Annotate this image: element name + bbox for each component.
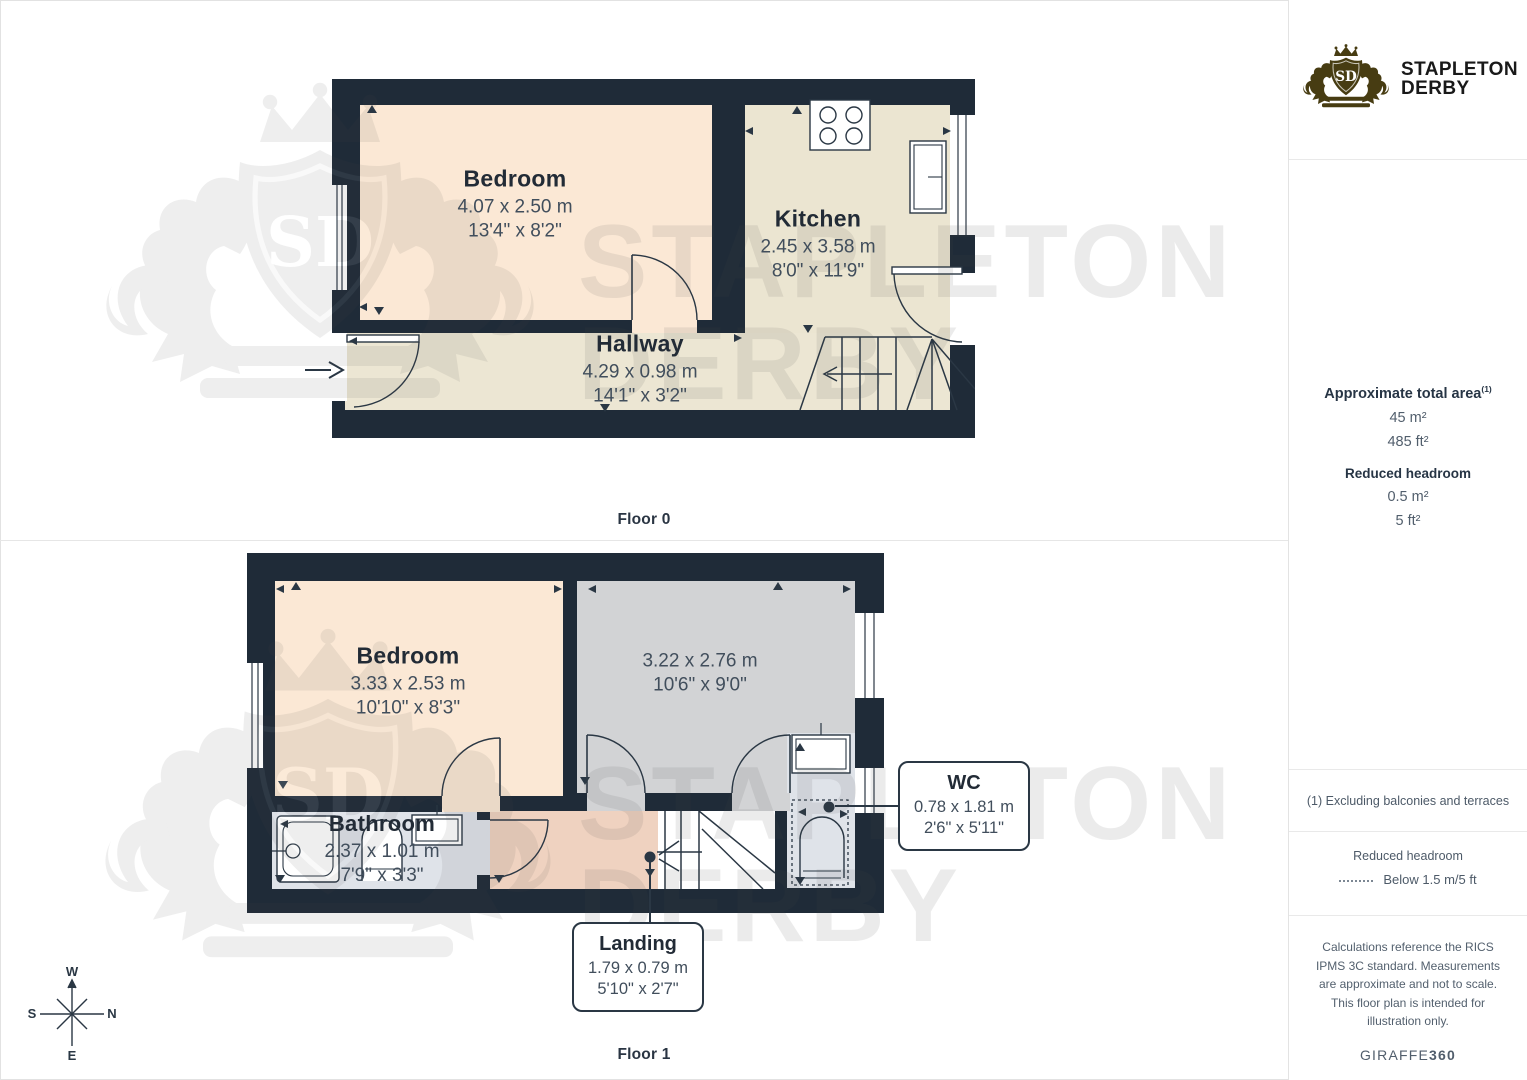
window xyxy=(332,185,347,290)
wc-leader-line xyxy=(835,805,901,807)
compass-west: W xyxy=(66,966,79,979)
room-landing xyxy=(490,811,658,889)
compass-north: N xyxy=(107,1006,116,1021)
area-summary: Approximate total area(1) 45 m² 485 ft² … xyxy=(1289,160,1527,770)
reduced-metric: 0.5 m² xyxy=(1289,489,1527,505)
compass-icon: W S N E xyxy=(26,966,118,1062)
compass-east: E xyxy=(68,1048,77,1062)
floorplan-area: STAPLETON DERBY STAPLETON DERBY xyxy=(0,0,1288,1080)
room-label-kitchen: Kitchen 2.45 x 3.58 m 8'0" x 11'9" xyxy=(760,205,875,282)
room-label-hallway: Hallway 4.29 x 0.98 m 14'1" x 3'2" xyxy=(582,330,697,407)
door-opening xyxy=(587,793,645,811)
disclaimer-text: Calculations reference the RICS IPMS 3C … xyxy=(1309,938,1507,1031)
window xyxy=(950,115,975,235)
footnote: (1) Excluding balconies and terraces xyxy=(1289,770,1527,832)
info-sidebar: STAPLETON DERBY Approximate total area(1… xyxy=(1288,0,1527,1080)
window xyxy=(247,663,263,768)
brand-logo: STAPLETON DERBY xyxy=(1289,0,1527,160)
room-label-bedroom-f1: Bedroom 3.33 x 2.53 m 10'10" x 8'3" xyxy=(350,642,465,719)
reduced-imperial: 5 ft² xyxy=(1289,513,1527,529)
door-opening xyxy=(442,796,500,812)
giraffe360-credit: GIRAFFE360 xyxy=(1289,1047,1527,1063)
area-imperial: 485 ft² xyxy=(1289,434,1527,450)
stove-icon xyxy=(810,100,870,150)
compass-south: S xyxy=(28,1006,37,1021)
floorplan-page: STAPLETON DERBY STAPLETON DERBY xyxy=(0,0,1527,1080)
room-label-bathroom: Bathroom 2.37 x 1.01 m 7'9" x 3'3" xyxy=(324,811,439,887)
entry-arrow-icon xyxy=(303,358,345,382)
floor1-label: Floor 1 xyxy=(0,1046,1288,1064)
stairwell xyxy=(658,811,775,889)
brand-crest-icon xyxy=(1298,44,1394,116)
landing-callout: Landing 1.79 x 0.79 m 5'10" x 2'7" xyxy=(572,922,704,1012)
door-opening xyxy=(477,820,490,875)
footnote-marker: (1) xyxy=(1481,384,1491,394)
window xyxy=(855,613,884,698)
door-opening xyxy=(732,793,790,811)
room-label-bedroom-f0: Bedroom 4.07 x 2.50 m 13'4" x 8'2" xyxy=(457,165,572,242)
brand-name: STAPLETON DERBY xyxy=(1401,61,1518,98)
wc-anchor-dot xyxy=(824,802,835,813)
area-title: Approximate total area(1) xyxy=(1289,384,1527,402)
room-label-unnamed: 3.22 x 2.76 m 10'6" x 9'0" xyxy=(642,649,757,696)
legend-title: Reduced headroom xyxy=(1289,849,1527,863)
sink-icon xyxy=(910,141,946,213)
section-divider xyxy=(0,540,1288,541)
floor0-label: Floor 0 xyxy=(0,511,1288,529)
legend: Reduced headroom Below 1.5 m/5 ft xyxy=(1289,832,1527,916)
wc-callout: WC 0.78 x 1.81 m 2'6" x 5'11" xyxy=(898,761,1030,851)
reduced-headroom-title: Reduced headroom xyxy=(1289,466,1527,481)
dotted-line-icon xyxy=(1339,880,1373,882)
disclaimer-section: Calculations reference the RICS IPMS 3C … xyxy=(1289,916,1527,1080)
area-metric: 45 m² xyxy=(1289,410,1527,426)
legend-item: Below 1.5 m/5 ft xyxy=(1289,872,1527,887)
landing-leader-line xyxy=(649,860,651,924)
